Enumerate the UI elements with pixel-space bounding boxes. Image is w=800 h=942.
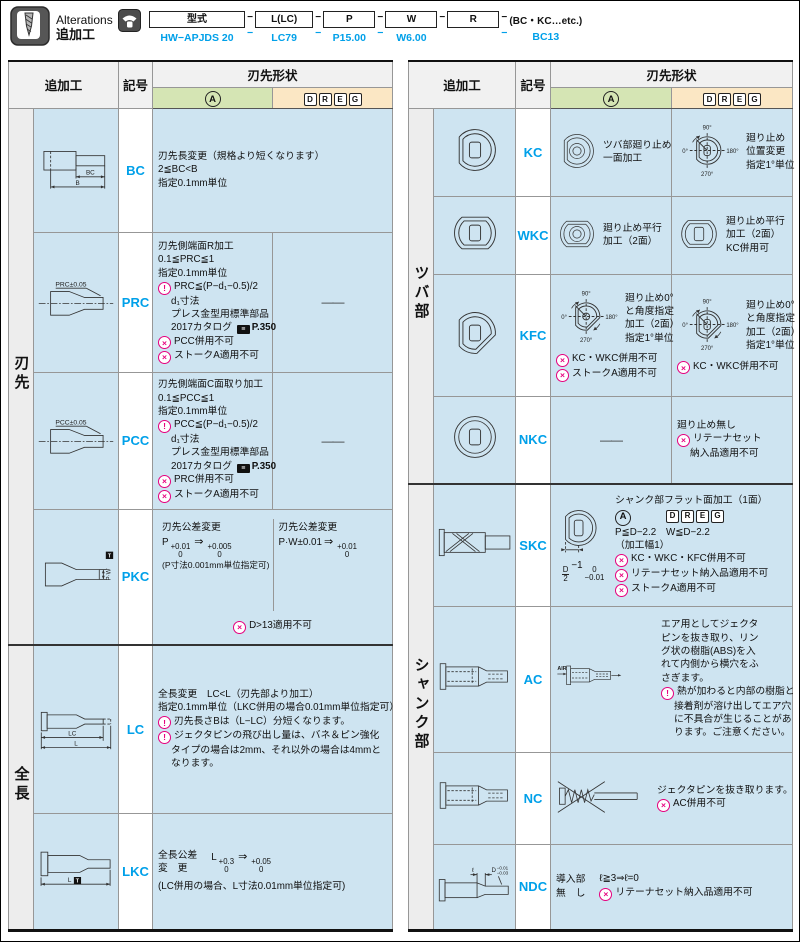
svg-text:90°: 90° (703, 299, 713, 305)
text-line: 全長変更 LC<L（刃先部より加工） (158, 688, 387, 701)
cell-blocks: 導入部無 しℓ≧3⇒ℓ=0×リテーナセット納入品適用不可 (556, 872, 787, 900)
text-line: P≦D−2.2 W≦D−2.2 (615, 526, 787, 539)
content-cell: 90°0°180°270°廻り止め0°と角度指定加工（2面）指定1°単位×KC・… (672, 274, 793, 396)
col-header-shape: 刃先形状 (153, 61, 393, 87)
text-line: 廻り止め0° (625, 292, 666, 305)
part-number-format: 型式HW−APJDS 20−−L(LC)LC79−−PP15.00−−WW6.0… (148, 9, 583, 45)
section-label: シャンク部 (411, 657, 432, 752)
cell-content: 刃先側端面C面取り加工0.1≦PCC≦1指定0.1mm単位!PCC≦(P−d₁−… (158, 378, 267, 502)
content-cell: ジェクタピンを抜き取ります。×AC併用不可 (551, 752, 793, 844)
split-column: 刃先公差変更P+0.010⇒+0.0050(P寸法0.001mm単位指定可) (158, 519, 273, 611)
format-top: P (323, 9, 375, 28)
symbol-NKC: NKC (516, 396, 551, 484)
text-line: 指定0.1mm単位 (158, 177, 387, 190)
type-letter-badge: E (334, 93, 347, 106)
not-applicable-dash: —— (278, 434, 387, 448)
cell-notes: ×KC・WKC併用不可×ストークA適用不可 (556, 352, 666, 382)
format-top: R (447, 9, 499, 28)
content-cell: 刃先長変更（規格より短くなります）2≦BC<B指定0.1mm単位 (153, 108, 393, 232)
table-row-NC: NCジェクタピンを抜き取ります。×AC併用不可 (409, 752, 793, 844)
svg-text:D: D (491, 867, 496, 874)
cell-content: 廻り止め平行加工（2面）KC併用可 (677, 212, 787, 259)
text-line: 一面加工 (603, 152, 666, 165)
content-cell: 刃先側端面R加工0.1≦PRC≦1指定0.1mm単位!PRC≦(P−d₁−0.5… (153, 232, 273, 372)
text-line: 変 更 (158, 862, 197, 875)
page-ref: P.350 (252, 322, 276, 333)
text-line: エア用としてジェクタ (661, 618, 787, 631)
type-letter-badge: D (304, 93, 317, 106)
content-cell: 廻り止め平行加工（2面） (551, 196, 672, 274)
not-applicable-dash: —— (556, 433, 666, 447)
svg-text:180°: 180° (605, 315, 618, 321)
section-label: ツバ部 (411, 265, 432, 322)
svg-text:−0.03: −0.03 (496, 870, 508, 875)
svg-text:270°: 270° (701, 172, 714, 178)
content-cell: 導入部無 しℓ≧3⇒ℓ=0×リテーナセット納入品適用不可 (551, 844, 793, 930)
text-line: 加工（2面） (603, 235, 666, 248)
page-title: Alterations 追加工 (56, 13, 113, 43)
type-a-badge: A (615, 510, 631, 526)
text-line: ×ストークA適用不可 (158, 488, 267, 503)
text-line: なります。 (158, 757, 387, 770)
symbol-NC: NC (516, 752, 551, 844)
text-line: ×AC併用不可 (657, 797, 787, 812)
cell-content: 刃先側端面R加工0.1≦PRC≦1指定0.1mm単位!PRC≦(P−d₁−0.5… (158, 240, 267, 364)
stacked-tolerance: 0−0.01 (585, 566, 605, 583)
col-header-symbol: 記号 (119, 61, 153, 108)
warn-icon: × (599, 888, 612, 901)
cell-text: 刃先側端面C面取り加工0.1≦PCC≦1指定0.1mm単位!PCC≦(P−d₁−… (158, 378, 267, 502)
table-row-PRC: PRC±0.05PRC刃先側端面R加工0.1≦PRC≦1指定0.1mm単位!PR… (9, 232, 393, 372)
format-top: − (501, 9, 507, 23)
svg-text:P·W: P·W (106, 568, 113, 580)
info-icon: ! (661, 687, 674, 700)
text-line: !刃先長さBは（L−LC）分短くなります。 (158, 715, 387, 730)
content-cell: 廻り止め無し×リテーナセット納入品適用不可 (672, 396, 793, 484)
cell-text: 廻り止め無し×リテーナセット納入品適用不可 (677, 419, 787, 460)
change-arrow: ⇒ (324, 536, 333, 548)
text-line: ×ストークA適用不可 (158, 349, 267, 364)
cell-blocks: 全長公差変 更L+0.30⇒+0.050 (158, 849, 387, 876)
type-a-badge: A (205, 91, 221, 107)
format-example-value: − (501, 27, 507, 40)
change-arrow: ⇒ (194, 536, 203, 548)
cell-content: 刃先長変更（規格より短くなります）2≦BC<B指定0.1mm単位 (158, 150, 387, 190)
text-line: 位置変更 (746, 145, 787, 158)
dial-diagram: 90°0°180°270° (556, 288, 620, 348)
content-cell: —— (551, 396, 672, 484)
text-line: !PCC≦(P−d₁−0.5)/2 (158, 418, 267, 433)
cell-text: 廻り止め0°と角度指定加工（2面）指定1°単位 (625, 292, 666, 345)
format-column: −− (377, 9, 383, 40)
type-a-badge-slot: A (205, 88, 221, 102)
stacked-tolerance: +0.0050 (208, 543, 232, 560)
tolerance-lower: 0 (337, 551, 357, 560)
type-letter-badge: E (696, 510, 709, 523)
cell-notes: (LC併用の場合、L寸法0.01mm単位指定可) (158, 880, 387, 893)
warn-icon: × (615, 569, 628, 582)
symbol-BC: BC (119, 108, 153, 232)
text-line: 刃先公差変更 (162, 521, 269, 534)
punch_taper-diagram: PRC±0.05 (34, 232, 119, 372)
table-row-NKC: NKC——廻り止め無し×リテーナセット納入品適用不可 (409, 396, 793, 484)
cell-content: ツバ部廻り止め一面加工 (556, 130, 666, 175)
type-dreg-badge-slot: DREG (702, 89, 762, 103)
text-line: 指定1°単位 (746, 159, 787, 172)
collar-diagram (434, 396, 516, 484)
text-line: ×ストークA適用不可 (615, 582, 787, 597)
title-japanese: 追加工 (56, 27, 113, 43)
col-header-type-dreg: DREG (672, 87, 793, 108)
warn-icon: × (556, 354, 569, 367)
col-header-type-a: A (551, 87, 672, 108)
punch_ndc-diagram: ℓD−0.01−0.03 (434, 844, 516, 930)
content-cell: 全長変更 LC<L（刃先部より加工）指定0.1mm単位（LKC併用の場合0.01… (153, 645, 393, 813)
cell-block: L+0.30⇒+0.050 (211, 850, 273, 875)
stacked-tolerance: D2 (562, 566, 570, 584)
format-column: WW6.00 (385, 9, 437, 45)
cell-content: 全長公差変 更L+0.30⇒+0.050 (158, 849, 387, 876)
col-header-type-dreg: DREG (273, 87, 393, 108)
info-icon: ! (158, 731, 171, 744)
page-ref: P.350 (252, 461, 276, 472)
text-segment: −1 (571, 560, 582, 571)
collar-diagram (434, 274, 516, 396)
cell-content: ジェクタピンを抜き取ります。×AC併用不可 (556, 780, 787, 817)
tolerance-lower: 0 (171, 551, 191, 560)
text-line: P+0.010⇒+0.0050 (162, 535, 269, 560)
text-line: に不具合が生じることがあ (661, 713, 787, 726)
text-line: 廻り止め (746, 132, 787, 145)
text-line: ×KC・WKC併用不可 (677, 360, 787, 375)
text-line: ツバ部廻り止め (603, 139, 666, 152)
text-line: ×リテーナセット納入品適用不可 (599, 886, 752, 901)
content-cell: 廻り止め平行加工（2面）KC併用可 (672, 196, 793, 274)
cell-text: 全長公差変 更L+0.30⇒+0.050 (158, 849, 387, 876)
section-cell: 全長 (9, 645, 34, 930)
format-column: (BC・KC…etc.)BC13 (509, 9, 582, 44)
text-line: プレス金型用標準部品 (158, 446, 267, 459)
text-line: 2≦BC<B (158, 163, 387, 176)
text-line: ℓ≧3⇒ℓ=0 (599, 872, 752, 885)
cell-text: 全長変更 LC<L（刃先部より加工）指定0.1mm単位（LKC併用の場合0.01… (158, 688, 387, 771)
format-top: W (385, 9, 437, 28)
punch_pkc-diagram: TP·W (34, 509, 119, 645)
info-icon: ! (158, 716, 171, 729)
info-icon: ! (158, 420, 171, 433)
text-line: !PRC≦(P−d₁−0.5)/2 (158, 280, 267, 295)
info-icon: ! (158, 282, 171, 295)
not-applicable-dash: —— (278, 295, 387, 309)
format-example-value: HW−APJDS 20 (160, 32, 233, 45)
text-line: d₁寸法 (158, 295, 267, 308)
format-box: L(LC) (255, 11, 313, 28)
table-row-WKC: WKC廻り止め平行加工（2面）廻り止め平行加工（2面）KC併用可 (409, 196, 793, 274)
content-cell: AIRエア用としてジェクタピンを抜き取り、リング状の樹脂(ABS)を入れて内側か… (551, 606, 793, 752)
text-line: ×PCC併用不可 (158, 335, 267, 350)
punch_lc-diagram: LCL (34, 645, 119, 813)
warn-icon: × (158, 475, 171, 488)
cell-block: ℓ≧3⇒ℓ=0×リテーナセット納入品適用不可 (599, 872, 752, 900)
text-line: 廻り止め無し (677, 419, 787, 432)
format-example-value: BC13 (532, 31, 559, 44)
table-row-KFC: KFC90°0°180°270°廻り止め0°と角度指定加工（2面）指定1°単位×… (409, 274, 793, 396)
cell-content: 90°0°180°270°廻り止め0°と角度指定加工（2面）指定1°単位 (556, 288, 666, 348)
format-top: − (377, 9, 383, 23)
book-icon: ≡ (237, 325, 250, 334)
text-line: 刃先長変更（規格より短くなります） (158, 150, 387, 163)
svg-text:PRC±0.05: PRC±0.05 (55, 281, 86, 288)
stacked-tolerance: +0.010 (337, 543, 357, 560)
symbol-WKC: WKC (516, 196, 551, 274)
content-cell: ツバ部廻り止め一面加工 (551, 108, 672, 196)
cell-text: 廻り止め0°と角度指定加工（2面）指定1°単位 (746, 299, 787, 352)
type-letter-badge: D (666, 510, 679, 523)
text-line: !ジェクタピンの飛び出し量は、バネ＆ピン強化 (158, 729, 387, 744)
text-line: 刃先側端面R加工 (158, 240, 267, 253)
catalog-page: { "table_headers": { "addwork": "追加工", "… (0, 0, 800, 942)
format-example-value: − (247, 27, 253, 40)
text-line: 廻り止め0° (746, 299, 787, 312)
table-row-PCC: PCC±0.05PCC刃先側端面C面取り加工0.1≦PCC≦1指定0.1mm単位… (9, 372, 393, 509)
text-line: 導入部 (556, 873, 585, 886)
table-row-KC: ツバ部KCツバ部廻り止め一面加工90°0°180°270°廻り止め位置変更指定1… (409, 108, 793, 196)
svg-text:AIR: AIR (557, 666, 566, 672)
text-line: タイプの場合は2mm、それ以外の場合は4mmと (158, 744, 387, 757)
svg-text:L: L (74, 740, 78, 747)
type-a-badge: A (603, 91, 619, 107)
warn-icon: × (677, 361, 690, 374)
symbol-LKC: LKC (119, 813, 153, 930)
text-line: ×リテーナセット納入品適用不可 (615, 567, 787, 582)
col-header-addwork: 追加工 (9, 61, 119, 108)
text-segment: P·W±0.01 (278, 537, 322, 548)
symbol-NDC: NDC (516, 844, 551, 930)
punch_bc-diagram: BCB (34, 108, 119, 232)
change-arrow: ⇒ (238, 851, 247, 863)
format-column: −− (315, 9, 321, 40)
type-letter-badge: R (319, 93, 332, 106)
format-box: P (323, 11, 375, 28)
text-line: 2017カタログ ≡P.350 (158, 460, 267, 473)
col-header-shape: 刃先形状 (551, 61, 793, 87)
type-dreg-badges: DREG (665, 508, 725, 519)
punch_shank-diagram (434, 484, 516, 606)
format-box: R (447, 11, 499, 28)
symbol-LC: LC (119, 645, 153, 813)
svg-text:90°: 90° (582, 292, 592, 298)
cell-content: 廻り止め無し×リテーナセット納入品適用不可 (677, 419, 787, 460)
tolerance-lower: 0 (219, 866, 234, 875)
col-header-addwork: 追加工 (409, 61, 516, 108)
punch_dashed-diagram (434, 606, 516, 752)
tolerance-lower: 2 (562, 575, 570, 584)
text-line: D2−10−0.01 (556, 559, 610, 584)
svg-text:ℓ: ℓ (471, 867, 473, 874)
tolerance-lower: 0 (208, 551, 232, 560)
text-line: 刃先公差変更 (278, 521, 383, 534)
alterations-table-left: 追加工 記号 刃先形状 A DREG 刃先BCBBC刃先長変更（規格より短くなり… (8, 60, 393, 932)
text-line: 0.1≦PCC≦1 (158, 392, 267, 405)
text-line: d₁寸法 (158, 433, 267, 446)
cell-content: 導入部無 しℓ≧3⇒ℓ=0×リテーナセット納入品適用不可 (556, 872, 787, 900)
format-example-value: − (377, 27, 383, 40)
collar_rings-diagram (556, 213, 598, 258)
text-line: KC併用可 (726, 242, 787, 255)
symbol-AC: AC (516, 606, 551, 752)
warn-icon: × (158, 351, 171, 364)
text-line: グ状の樹脂(ABS)を入 (661, 645, 787, 658)
alterations-table-right: 追加工 記号 刃先形状 A DREG ツバ部KCツバ部廻り止め一面加工90°0°… (408, 60, 793, 932)
text-line: (P寸法0.001mm単位指定可) (162, 560, 269, 572)
content-cell: 刃先側端面C面取り加工0.1≦PCC≦1指定0.1mm単位!PCC≦(P−d₁−… (153, 372, 273, 509)
text-segment: P (162, 537, 169, 548)
cell-text: 刃先長変更（規格より短くなります）2≦BC<B指定0.1mm単位 (158, 150, 387, 190)
table-row-SKC: シャンク部SKCD2−10−0.01シャンク部フラット面加工（1面）ADREGP… (409, 484, 793, 606)
cell-text: 導入部無 しℓ≧3⇒ℓ=0×リテーナセット納入品適用不可 (556, 872, 787, 900)
svg-text:270°: 270° (701, 346, 714, 352)
warn-icon: × (158, 490, 171, 503)
text-line: 0.1≦PRC≦1 (158, 253, 267, 266)
cell-content: 全長変更 LC<L（刃先部より加工）指定0.1mm単位（LKC併用の場合0.01… (158, 688, 387, 771)
text-line: 2017カタログ ≡P.350 (158, 321, 267, 334)
book-icon: ≡ (237, 464, 250, 473)
text-line: （加工幅1） (615, 539, 787, 552)
format-column: −− (247, 9, 253, 40)
text-line: と角度指定 (625, 305, 666, 318)
content-cell: D2−10−0.01シャンク部フラット面加工（1面）ADREGP≦D−2.2 W… (551, 484, 793, 606)
symbol-PKC: PKC (119, 509, 153, 645)
tolerance-lower: −0.01 (585, 574, 605, 583)
text-line: ×KC・WKC・KFC併用不可 (615, 552, 787, 567)
type-letter-badge: R (718, 93, 731, 106)
text-line: 刃先側端面C面取り加工 (158, 378, 267, 391)
stacked-tolerance: +0.30 (219, 858, 234, 875)
format-box: 型式 (149, 11, 245, 28)
table-row-AC: ACAIRエア用としてジェクタピンを抜き取り、リング状の樹脂(ABS)を入れて内… (409, 606, 793, 752)
type-dreg-badge-slot: DREG (303, 89, 363, 103)
text-line: プレス金型用標準部品 (158, 308, 267, 321)
text-line: 指定0.1mm単位 (158, 267, 267, 280)
type-letter-badge: G (349, 93, 362, 106)
table-row-PKC: TP·WPKC刃先公差変更P+0.010⇒+0.0050(P寸法0.001mm単… (9, 509, 393, 645)
format-top: − (439, 9, 445, 23)
text-line: ×PRC併用不可 (158, 473, 267, 488)
text-line: れて内側から横穴をふ (661, 658, 787, 671)
punch_dashed-diagram (434, 752, 516, 844)
cell-content: 90°0°180°270°廻り止め位置変更指定1°単位 (677, 122, 787, 182)
format-column: 型式HW−APJDS 20 (149, 9, 245, 45)
cell-text: エア用としてジェクタピンを抜き取り、リング状の樹脂(ABS)を入れて内側から横穴… (661, 618, 787, 739)
text-line: さぎます。 (661, 672, 787, 685)
page-header: Alterations 追加工 型式HW−APJDS 20−−L(LC)LC79… (8, 4, 796, 58)
title-english: Alterations (56, 13, 113, 27)
text-line: ジェクタピンを抜き取ります。 (657, 784, 787, 797)
collar-diagram (677, 212, 721, 259)
cell-notes: ×KC・WKC併用不可 (677, 360, 787, 375)
content-cell: —— (273, 372, 393, 509)
content-cell: —— (273, 232, 393, 372)
col-header-type-a: A (153, 87, 273, 108)
content-cell: 全長公差変 更L+0.30⇒+0.050(LC併用の場合、L寸法0.01mm単位… (153, 813, 393, 930)
col-header-symbol: 記号 (516, 61, 551, 108)
stacked-tolerance: +0.010 (171, 543, 191, 560)
format-example-value: LC79 (271, 32, 297, 45)
symbol-KFC: KFC (516, 274, 551, 396)
svg-text:90°: 90° (703, 125, 713, 131)
format-top: − (247, 9, 253, 23)
type-a-badge-slot: A (603, 88, 619, 102)
text-line: と角度指定 (746, 312, 787, 325)
tolerance-lower: 0 (251, 866, 271, 875)
text-line: L+0.30⇒+0.050 (211, 850, 273, 875)
text-line: ×リテーナセット (677, 432, 787, 447)
section-cell: 刃先 (9, 108, 34, 645)
alterations-punch-icon (10, 6, 50, 51)
svg-text:270°: 270° (580, 338, 593, 344)
type-letter-badge: D (703, 93, 716, 106)
text-line: 加工（2面） (746, 326, 787, 339)
punch_lkc-diagram: LT (34, 813, 119, 930)
text-line: ります。ご注意ください。 (661, 726, 787, 739)
section-cell: シャンク部 (409, 484, 434, 930)
text-line: ×ストークA適用不可 (556, 367, 666, 382)
format-column: − (439, 9, 445, 40)
cell-text: 廻り止め位置変更指定1°単位 (746, 132, 787, 172)
text-line: 全長公差 (158, 849, 197, 862)
table-row-BC: 刃先BCBBC刃先長変更（規格より短くなります）2≦BC<B指定0.1mm単位 (9, 108, 393, 232)
svg-text:180°: 180° (726, 149, 739, 155)
cell-block: 全長公差変 更 (158, 849, 197, 876)
cell-block: 導入部無 し (556, 873, 585, 900)
type-letter-badge: G (711, 510, 724, 523)
warn-icon: × (556, 369, 569, 382)
section-label: 全長 (11, 766, 32, 804)
text-line: 加工（2面） (726, 228, 787, 241)
type-letter-badge: G (748, 93, 761, 106)
warn-icon: × (615, 584, 628, 597)
format-column: −− (501, 9, 507, 40)
text-line: 無 し (556, 887, 585, 900)
text-line: 廻り止め平行 (603, 222, 666, 235)
cell-content: D2−10−0.01シャンク部フラット面加工（1面）ADREGP≦D−2.2 W… (556, 494, 787, 597)
type-letter-badge: E (733, 93, 746, 106)
svg-text:180°: 180° (726, 322, 739, 328)
format-example-value: − (315, 27, 321, 40)
cell-content: 90°0°180°270°廻り止め0°と角度指定加工（2面）指定1°単位 (677, 296, 787, 356)
text-line: 加工（2面） (625, 318, 666, 331)
table-header-row: 追加工 記号 刃先形状 (409, 61, 793, 87)
format-column: R (447, 9, 499, 45)
collar_rings-diagram (556, 130, 598, 175)
ac_diagram-diagram: AIR (556, 662, 656, 697)
text-line: (LC併用の場合、L寸法0.01mm単位指定可) (158, 880, 387, 893)
text-line: 指定0.1mm単位 (158, 405, 267, 418)
format-top: (BC・KC…etc.) (509, 9, 582, 27)
text-line: ×KC・WKC併用不可 (556, 352, 666, 367)
format-column: PP15.00 (323, 9, 375, 45)
table-header-row: 追加工 記号 刃先形状 (9, 61, 393, 87)
collar-diagram (434, 196, 516, 274)
type-letter-badge: R (681, 510, 694, 523)
content-cell: 90°0°180°270°廻り止め0°と角度指定加工（2面）指定1°単位×KC・… (551, 274, 672, 396)
svg-text:L: L (68, 877, 72, 884)
content-cell: 刃先公差変更P+0.010⇒+0.0050(P寸法0.001mm単位指定可)刃先… (153, 509, 393, 645)
svg-text:0°: 0° (682, 322, 688, 328)
text-line: !熱が加わると内部の樹脂と (661, 685, 787, 700)
dial-diagram: 90°0°180°270° (677, 122, 741, 182)
text-segment: L (211, 852, 216, 863)
